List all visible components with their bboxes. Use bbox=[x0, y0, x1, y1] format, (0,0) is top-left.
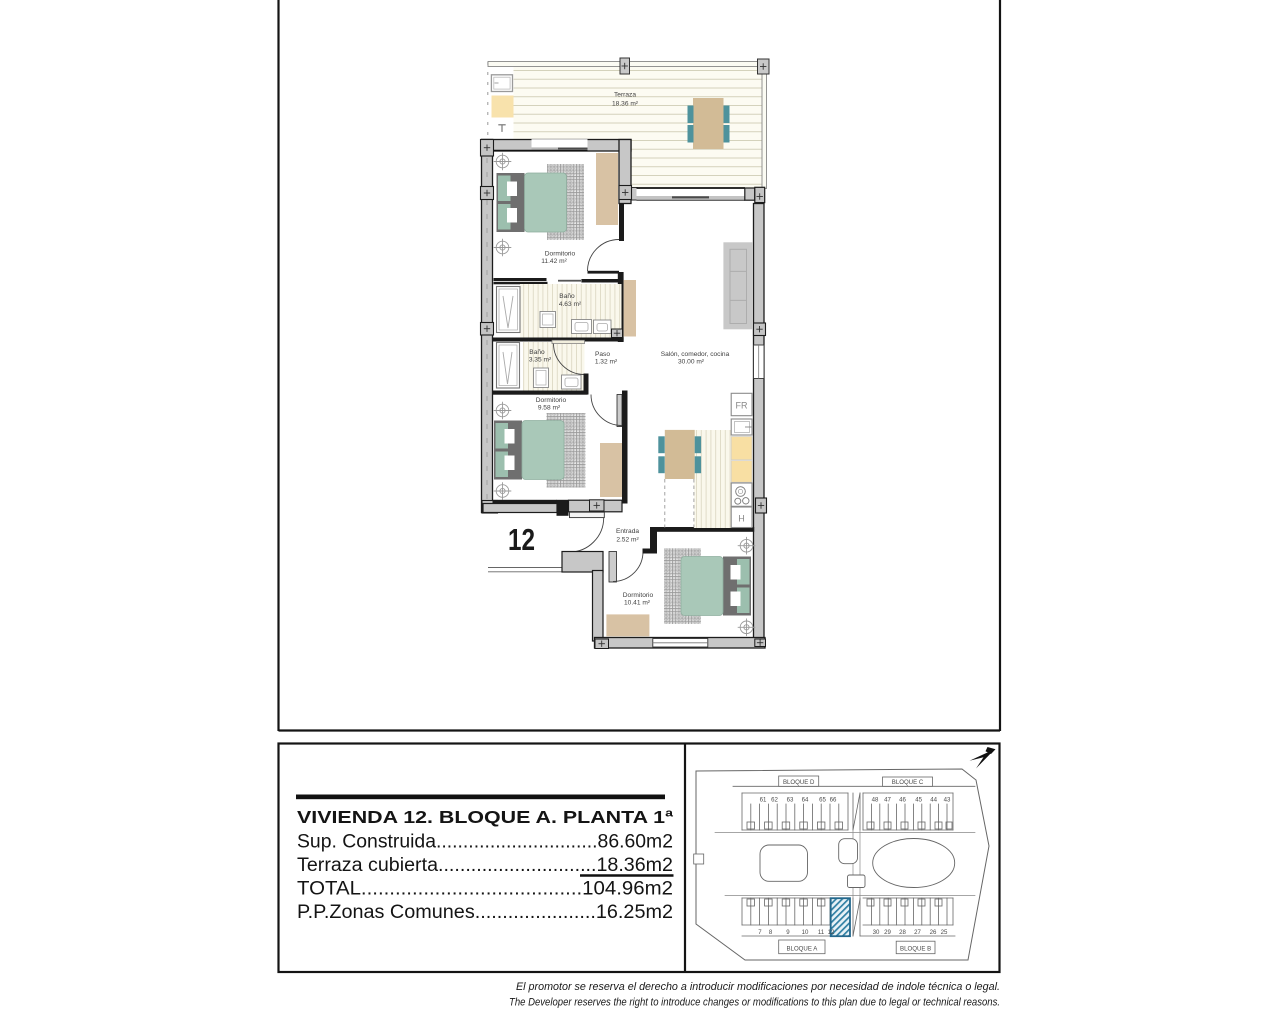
svg-text:48: 48 bbox=[872, 797, 879, 804]
svg-text:Dormitorio: Dormitorio bbox=[623, 592, 654, 599]
svg-text:29: 29 bbox=[884, 929, 891, 936]
svg-text:Baño: Baño bbox=[529, 349, 545, 356]
svg-text:4.63 m²: 4.63 m² bbox=[559, 301, 582, 308]
svg-text:H: H bbox=[738, 514, 745, 524]
svg-text:63: 63 bbox=[787, 797, 794, 804]
svg-text:BLOQUE A: BLOQUE A bbox=[786, 946, 818, 953]
svg-text:BLOQUE D: BLOQUE D bbox=[783, 779, 815, 786]
svg-text:VIVIENDA 12. BLOQUE A. PLANTA: VIVIENDA 12. BLOQUE A. PLANTA 1ª bbox=[297, 807, 673, 827]
svg-text:62: 62 bbox=[771, 797, 778, 804]
svg-text:12: 12 bbox=[828, 929, 835, 936]
svg-text:The Developer reserves the rig: The Developer reserves the right to intr… bbox=[509, 997, 1000, 1009]
svg-text:43: 43 bbox=[944, 797, 951, 804]
svg-text:61: 61 bbox=[760, 797, 767, 804]
svg-text:9.58 m²: 9.58 m² bbox=[538, 405, 561, 412]
svg-text:P.P.Zonas Comunes.............: P.P.Zonas Comunes......................1… bbox=[297, 902, 673, 923]
svg-text:44: 44 bbox=[930, 797, 937, 804]
svg-text:Salón, comedor, cocina: Salón, comedor, cocina bbox=[661, 351, 730, 358]
svg-text:66: 66 bbox=[830, 797, 837, 804]
svg-text:12: 12 bbox=[508, 522, 535, 557]
svg-text:46: 46 bbox=[899, 797, 906, 804]
svg-text:18.36 m²: 18.36 m² bbox=[612, 101, 639, 108]
svg-text:30: 30 bbox=[873, 929, 880, 936]
svg-text:BLOQUE C: BLOQUE C bbox=[892, 779, 924, 786]
svg-text:11: 11 bbox=[818, 929, 825, 936]
svg-text:1.32 m²: 1.32 m² bbox=[595, 359, 618, 366]
svg-text:El promotor se reserva el dere: El promotor se reserva el derecho a intr… bbox=[516, 981, 1000, 993]
svg-text:10: 10 bbox=[802, 929, 809, 936]
svg-text:Entrada: Entrada bbox=[616, 528, 639, 535]
svg-text:25: 25 bbox=[941, 929, 948, 936]
svg-text:Terraza: Terraza bbox=[614, 92, 636, 99]
svg-text:Dormitorio: Dormitorio bbox=[545, 251, 576, 258]
svg-text:Baño: Baño bbox=[559, 293, 575, 300]
svg-text:10.41 m²: 10.41 m² bbox=[624, 600, 651, 607]
svg-text:45: 45 bbox=[915, 797, 922, 804]
svg-text:Sup. Construida...............: Sup. Construida.........................… bbox=[297, 832, 673, 853]
svg-text:Terraza cubierta..............: Terraza cubierta........................… bbox=[297, 855, 673, 876]
svg-text:FR: FR bbox=[736, 401, 748, 411]
svg-text:27: 27 bbox=[914, 929, 921, 936]
svg-text:47: 47 bbox=[884, 797, 891, 804]
svg-text:30.00 m²: 30.00 m² bbox=[678, 359, 705, 366]
svg-text:BLOQUE B: BLOQUE B bbox=[900, 946, 931, 953]
svg-text:Paso: Paso bbox=[595, 351, 610, 358]
svg-text:11.42 m²: 11.42 m² bbox=[541, 258, 567, 265]
svg-text:2.52 m²: 2.52 m² bbox=[616, 537, 639, 544]
svg-text:26: 26 bbox=[930, 929, 937, 936]
svg-text:28: 28 bbox=[899, 929, 906, 936]
svg-text:65: 65 bbox=[819, 797, 826, 804]
svg-text:Dormitorio: Dormitorio bbox=[536, 397, 567, 404]
svg-text:3.35 m²: 3.35 m² bbox=[529, 357, 552, 364]
svg-text:64: 64 bbox=[802, 797, 809, 804]
svg-text:TOTAL.........................: TOTAL...................................… bbox=[297, 879, 673, 900]
